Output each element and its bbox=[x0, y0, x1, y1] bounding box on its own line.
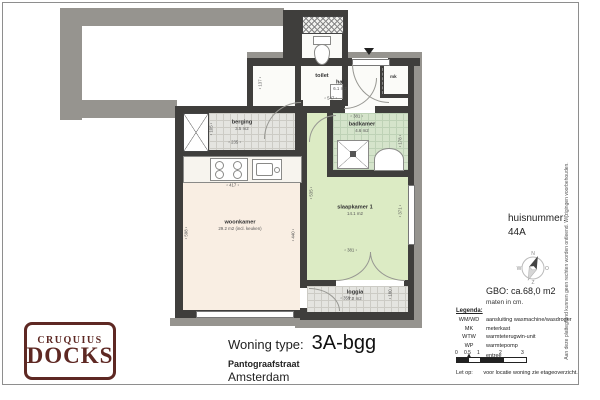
logo-line2: DOCKS bbox=[27, 346, 114, 367]
room-label-mk: mk bbox=[390, 75, 397, 80]
dimension-label: 381 bbox=[350, 115, 362, 119]
sink-basin bbox=[256, 163, 273, 176]
neighbour-wall bbox=[60, 8, 284, 26]
legend-key: WP bbox=[456, 342, 482, 351]
neighbour-wall bbox=[82, 100, 177, 118]
room-name: slaapkamer 1 bbox=[323, 205, 387, 212]
dimension-label: 105 bbox=[210, 123, 214, 135]
sink-faucet bbox=[274, 167, 280, 173]
wall bbox=[175, 106, 345, 113]
scale-tick: 0 bbox=[455, 350, 458, 356]
legend-row: WP warmtepomp bbox=[456, 342, 574, 351]
washbasin bbox=[374, 148, 404, 171]
room-area: 14.1 m2 bbox=[323, 212, 387, 218]
floorplan-sheet: toilet hal 6.1 m2 mk berging 3.5 m2 badk… bbox=[0, 0, 600, 400]
dimension-label: 417 bbox=[226, 184, 238, 188]
gbo-text: GBO: ca.68,0 m2 bbox=[486, 286, 556, 296]
dimension-label: 180 bbox=[389, 287, 393, 299]
room-area: 29.2 m2 (incl. keuken) bbox=[204, 227, 276, 233]
legend-key: WTW bbox=[456, 333, 482, 342]
exterior-cladding bbox=[414, 52, 422, 320]
room-area: 4.6 m2 bbox=[338, 129, 386, 135]
scale-segments bbox=[456, 357, 527, 361]
legend-key: MK bbox=[456, 325, 482, 334]
kitchen-sink bbox=[252, 159, 282, 180]
street-name: Pantograafstraat bbox=[228, 359, 376, 369]
wall bbox=[247, 58, 253, 112]
legend-key: WM/WD bbox=[456, 316, 482, 325]
compass-e: O bbox=[545, 266, 549, 272]
room-name: hal bbox=[324, 80, 356, 87]
room-label-slaapkamer: slaapkamer 1 14.1 m2 bbox=[323, 205, 387, 218]
dimension-label: 547 bbox=[324, 97, 336, 101]
room-name: loggia bbox=[331, 290, 379, 297]
scale-tick: 1 bbox=[477, 350, 480, 356]
huisnummer-value: 44A bbox=[508, 226, 566, 240]
cruquius-docks-logo: CRUQUIUS DOCKS bbox=[24, 322, 116, 380]
legend-value: aansluiting wasmachine/wasdroger bbox=[486, 316, 574, 325]
room-label-berging: berging 3.5 m2 bbox=[218, 120, 266, 133]
exterior-cladding bbox=[170, 318, 307, 326]
dimension-label: 598 bbox=[185, 227, 189, 239]
vent-shaft bbox=[302, 16, 344, 34]
wall bbox=[327, 170, 414, 177]
room-label-badkamer: badkamer 4.6 m2 bbox=[338, 122, 386, 135]
shaft bbox=[183, 113, 209, 152]
scale-tick: 3 bbox=[521, 350, 524, 356]
floor-plan: toilet hal 6.1 m2 mk berging 3.5 m2 badk… bbox=[0, 0, 450, 340]
dimension-label: 178 bbox=[399, 135, 403, 147]
mk-door bbox=[382, 68, 383, 94]
room-name: berging bbox=[218, 120, 266, 127]
dimension-label: 235 bbox=[228, 141, 240, 145]
wall bbox=[300, 280, 336, 286]
dimension-label: 381 bbox=[344, 249, 356, 253]
window bbox=[196, 311, 294, 318]
room-area: 6.1 m2 bbox=[324, 87, 356, 93]
compass-icon: N O Z W bbox=[516, 250, 550, 284]
entree-icon bbox=[364, 48, 374, 55]
compass-n: N bbox=[531, 251, 535, 257]
dimension-label: 535 bbox=[310, 187, 314, 199]
dimension-label: 137 bbox=[259, 77, 263, 89]
scale-tick: 2 bbox=[499, 350, 502, 356]
huisnummer-label: huisnummer: bbox=[508, 212, 566, 226]
dimension-label: 371 bbox=[399, 205, 403, 217]
woning-type-label: Woning type: bbox=[228, 337, 304, 352]
stove-burner bbox=[233, 161, 242, 170]
wall bbox=[175, 106, 183, 318]
dimension-label: 440 bbox=[292, 229, 296, 241]
wall bbox=[404, 280, 414, 286]
legend-row: WM/WD aansluiting wasmachine/wasdroger bbox=[456, 316, 574, 325]
stove bbox=[210, 158, 248, 181]
stove-burner bbox=[215, 170, 224, 179]
scale-bar: 0 0.5 1 2 3 bbox=[456, 350, 548, 364]
neighbour-wall bbox=[60, 8, 82, 120]
disclaimer: Aan deze plattegrond kunnen geen rechten… bbox=[564, 141, 570, 381]
room-area: 3.5 m2 bbox=[218, 127, 266, 133]
legend-value: warmtepomp bbox=[486, 342, 574, 351]
huisnummer-block: huisnummer: 44A bbox=[508, 212, 566, 239]
shower-drain bbox=[350, 151, 356, 157]
room-name: woonkamer bbox=[204, 220, 276, 227]
compass-s: Z bbox=[531, 280, 534, 284]
legend-row: MK meterkast bbox=[456, 325, 574, 334]
stove-burner bbox=[215, 161, 224, 170]
room-area: 7.2 m2 bbox=[331, 297, 379, 303]
note: Let op: voor locatie woning zie etageove… bbox=[456, 370, 578, 376]
note-label: Let op: bbox=[456, 370, 473, 376]
legend-row: WTW warmteterugwin-unit bbox=[456, 333, 574, 342]
legend-value: warmteterugwin-unit bbox=[486, 333, 574, 342]
title-block: Woning type: 3A-bgg Pantograafstraat Ams… bbox=[228, 332, 376, 384]
wall bbox=[300, 312, 414, 320]
maten-text: maten in cm. bbox=[486, 299, 523, 306]
room-label-woonkamer: woonkamer 29.2 m2 (incl. keuken) bbox=[204, 220, 276, 233]
city-name: Amsterdam bbox=[228, 370, 376, 384]
room-label-hal: hal 6.1 m2 bbox=[324, 80, 356, 93]
wall bbox=[283, 10, 302, 58]
legend-title: Legenda: bbox=[456, 308, 574, 314]
dimension-label: 359 bbox=[340, 297, 352, 301]
legend-value: meterkast bbox=[486, 325, 574, 334]
window bbox=[408, 185, 415, 245]
room-label-loggia: loggia 7.2 m2 bbox=[331, 290, 379, 303]
stove-burner bbox=[233, 170, 242, 179]
compass-w: W bbox=[517, 266, 522, 272]
exterior-cladding bbox=[295, 320, 422, 328]
woning-type-value: 3A-bgg bbox=[312, 332, 377, 355]
shower bbox=[337, 140, 369, 169]
scale-tick: 0.5 bbox=[464, 350, 471, 356]
wall bbox=[388, 58, 420, 66]
room-name: badkamer bbox=[338, 122, 386, 129]
